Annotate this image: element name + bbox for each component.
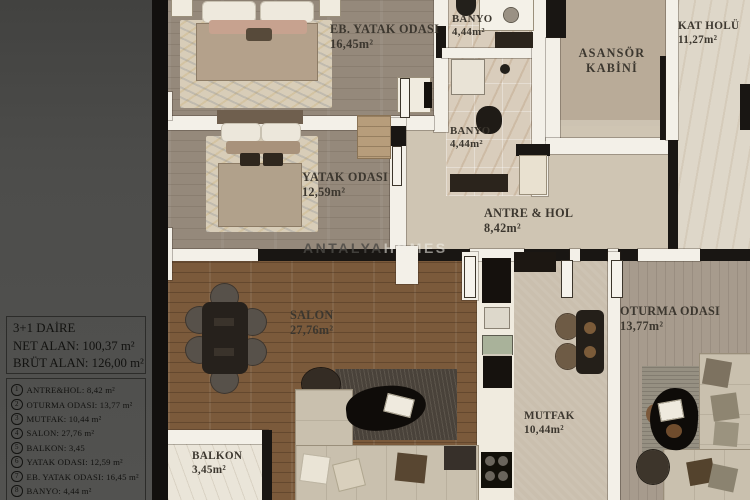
sidebar-divider [152, 0, 168, 500]
wardrobe [358, 116, 390, 158]
bed-pillow [222, 124, 260, 141]
door-leaf-mutfak [561, 260, 573, 298]
bowl [584, 346, 596, 358]
legend-item: 6 YATAK ODASI: 12,59 m² [11, 455, 145, 469]
gross-area-text: BRÜT ALAN: 126,00 m² [13, 355, 145, 373]
dining-table [202, 302, 248, 374]
room-label-antre: ANTRE & HOL8,42m² [484, 206, 573, 236]
room-list-box: 1 ANTRE&HOL: 8,42 m² 2 OTURMA ODASI: 13,… [6, 378, 146, 500]
legend-item-number: 7 [11, 471, 23, 483]
pouf [637, 450, 669, 484]
legend-item-number: 6 [11, 456, 23, 468]
sofa-pillow [708, 464, 738, 493]
room-label-asansor: ASANSÖRKABİNİ [556, 46, 668, 76]
bed-accent-pillow [226, 141, 300, 154]
bed-accent-pillow [246, 28, 272, 41]
watermark: ANTALYAHOMES [303, 240, 448, 256]
sofa-pillow [710, 392, 739, 421]
watermark-text: ANTALYA [303, 240, 384, 256]
bowl [584, 322, 596, 334]
legend-item-label: BANYO: 4,44 m² [27, 486, 92, 496]
door-leaf-yatak [392, 146, 402, 186]
sofa-throw [444, 446, 476, 470]
room-label-banyo-top: BANYO4,44m² [452, 13, 493, 39]
wall-dark [390, 126, 406, 146]
kitchen-table [576, 310, 604, 374]
wall-dark [700, 249, 750, 261]
legend-item-number: 2 [11, 399, 23, 411]
bowl [666, 424, 682, 438]
room-label-balkon: BALKON3,45m² [192, 450, 242, 477]
wall [442, 48, 534, 58]
legend-item: 1 ANTRE&HOL: 8,42 m² [11, 383, 145, 397]
oven [483, 354, 512, 388]
bathroom-counter [495, 32, 533, 48]
burner [498, 456, 508, 466]
legend-item-label: SALON: 27,76 m² [27, 428, 95, 438]
room-label-salon: SALON27,76m² [290, 308, 334, 338]
sofa-pillow [713, 421, 739, 447]
shoe-cabinet [520, 156, 546, 194]
bathroom-sink [504, 8, 518, 22]
legend-item: 2 OTURMA ODASI: 13,77 m² [11, 397, 145, 411]
legend-item-number: 3 [11, 413, 23, 425]
legend-item: 3 MUTFAK: 10,44 m² [11, 412, 145, 426]
bed-patterned-pillow [240, 153, 260, 166]
door-leaf-eb-yatak [400, 78, 410, 118]
room-label-oturma: OTURMA ODASI13,77m² [620, 304, 720, 334]
legend-item-label: MUTFAK: 10,44 m² [27, 414, 102, 424]
legend-item-number: 1 [11, 384, 23, 396]
bathroom-vanity [450, 174, 508, 192]
door-leaf-salon [464, 256, 476, 298]
refrigerator [482, 258, 511, 303]
legend-item-label: BALKON: 3,45 [27, 443, 85, 453]
kitchen-sink [485, 308, 509, 328]
microwave [483, 336, 512, 354]
legend-item-label: ANTRE&HOL: 8,42 m² [27, 385, 116, 395]
legend-item: 7 EB. YATAK ODASI: 16,45 m² [11, 469, 145, 483]
sofa-pillow [300, 454, 329, 483]
burner [485, 456, 495, 466]
apartment-title: 3+1 DAİRE [13, 320, 145, 338]
table-decor [214, 318, 234, 326]
shower-head [500, 64, 510, 74]
room-label-kat-holu: KAT HOLÜ11,27m² [678, 20, 739, 47]
shower-tray [452, 60, 484, 94]
room-label-yatak: YATAK ODASI12,59m² [302, 170, 388, 200]
legend-item-label: EB. YATAK ODASI: 16,45 m² [27, 472, 139, 482]
bed-pillow [203, 2, 255, 22]
floorplan-screenshot: EB. YATAK ODASI16,45m² BANYO4,44m² ASANS… [0, 0, 750, 500]
legend-item: 8 BANYO: 4,44 m² [11, 484, 145, 498]
watermark-text: HOMES [384, 240, 448, 256]
legend-item-label: OTURMA ODASI: 13,77 m² [27, 400, 133, 410]
sofa-pillow [702, 358, 732, 388]
wall [168, 430, 268, 444]
legend-item-number: 8 [11, 485, 23, 497]
bedroom-bed [217, 110, 303, 226]
door-leaf-oturma [611, 260, 623, 298]
holu-console [740, 84, 750, 130]
room-label-mutfak: MUTFAK10,44m² [524, 410, 575, 437]
wall-dark [516, 144, 550, 156]
burner [485, 471, 495, 481]
shaft-dark [546, 0, 566, 38]
legend-item-number: 5 [11, 442, 23, 454]
burner [498, 471, 508, 481]
sofa-pillow [395, 453, 428, 484]
wall-dark [580, 249, 608, 261]
legend-sidebar: 3+1 DAİRE NET ALAN: 100,37 m² BRÜT ALAN:… [0, 0, 152, 500]
room-label-eb-yatak: EB. YATAK ODASI16,45m² [330, 22, 439, 52]
bed-patterned-pillow [263, 153, 283, 166]
kitchen-cabinet [514, 252, 556, 272]
room-label-banyo-mid: BANYO4,44m² [450, 125, 491, 151]
legend-item: 4 SALON: 27,76 m² [11, 426, 145, 440]
legend-item-number: 4 [11, 428, 23, 440]
legend-item-label: YATAK ODASI: 12,59 m² [27, 457, 123, 467]
wall [168, 249, 258, 261]
bed-pillow [261, 2, 313, 22]
bed-pillow [262, 124, 300, 141]
nightstand [320, 0, 340, 16]
tv-unit [424, 82, 432, 108]
eb-bedroom-bed [197, 0, 317, 80]
wall [434, 0, 448, 132]
table-decor [214, 348, 234, 356]
wall-dark [668, 140, 678, 252]
nightstand [172, 0, 192, 16]
bed-headboard [217, 110, 303, 124]
cooktop [481, 452, 512, 488]
apartment-summary-box: 3+1 DAİRE NET ALAN: 100,37 m² BRÜT ALAN:… [6, 316, 146, 374]
wall [546, 138, 674, 154]
wall-dark [262, 430, 272, 500]
legend-item: 5 BALKON: 3,45 [11, 441, 145, 455]
bed-blanket [219, 164, 301, 226]
net-area-text: NET ALAN: 100,37 m² [13, 338, 145, 356]
wall [638, 249, 700, 261]
